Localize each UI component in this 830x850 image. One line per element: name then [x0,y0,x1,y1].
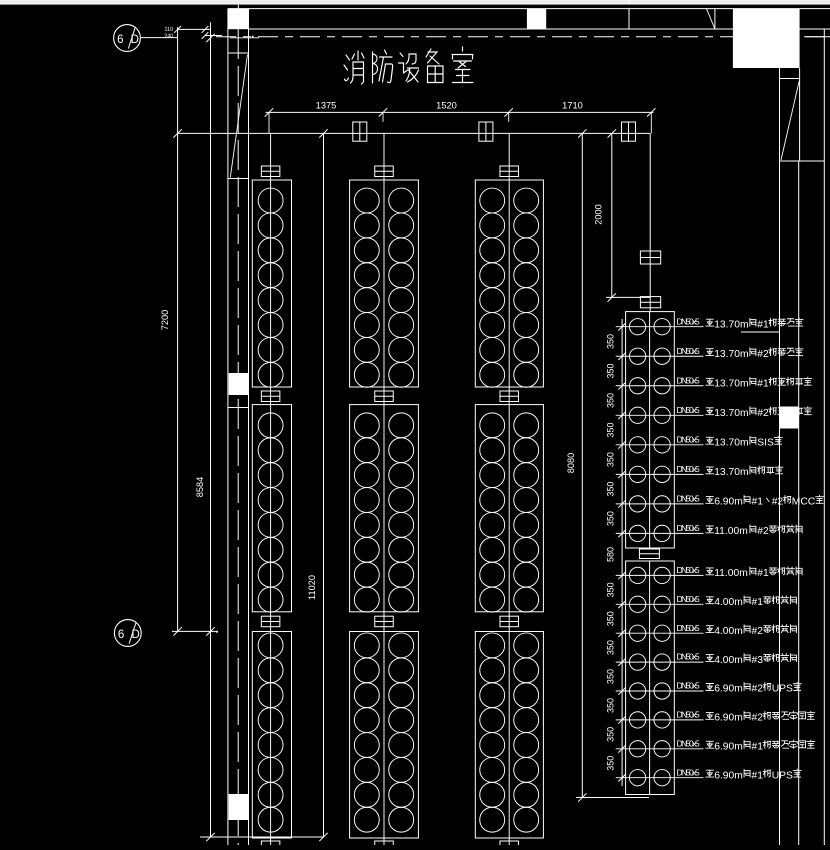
svg-text:DN50x5: DN50x5 [677,767,700,777]
svg-text:350: 350 [606,423,616,438]
svg-text:DN50x5: DN50x5 [677,681,700,691]
svg-text:#1: #1 [757,379,769,390]
svg-text:350: 350 [606,511,616,526]
svg-text:13.70m: 13.70m [714,379,748,390]
svg-text:350: 350 [606,640,616,655]
svg-text:6.90m: 6.90m [714,684,743,695]
svg-text:#1: #1 [752,597,764,608]
svg-text:350: 350 [606,698,616,713]
svg-text:350: 350 [606,452,616,467]
svg-text:8584: 8584 [195,477,205,497]
svg-text:DN50x5: DN50x5 [677,565,700,575]
svg-text:DN50x5: DN50x5 [677,523,700,533]
svg-text:#1: #1 [757,568,769,579]
svg-text:1375: 1375 [316,100,337,110]
svg-text:6: 6 [118,629,124,641]
svg-text:2000: 2000 [594,204,604,224]
svg-text:6.90m: 6.90m [714,742,743,753]
svg-text:#2: #2 [757,349,769,360]
svg-text:SIS: SIS [757,438,774,449]
svg-text:D: D [131,629,139,641]
svg-text:6.90m: 6.90m [714,713,743,724]
svg-text:6.90m: 6.90m [714,497,743,508]
svg-text:#1: #1 [752,497,764,508]
svg-text:11.00m: 11.00m [714,568,748,579]
svg-text:4.00m: 4.00m [714,597,743,608]
svg-text:#2: #2 [752,684,764,695]
svg-text:6.90m: 6.90m [714,770,743,781]
svg-text:350: 350 [606,334,616,349]
svg-text:DN50x5: DN50x5 [677,316,700,326]
svg-text:MCC: MCC [792,497,816,508]
svg-text:4.00m: 4.00m [714,626,743,637]
svg-text:240: 240 [164,34,173,40]
svg-text:13.70m: 13.70m [714,319,748,330]
svg-text:DN50x5: DN50x5 [677,464,700,474]
svg-text:350: 350 [606,727,616,742]
svg-text:#2: #2 [752,626,764,637]
svg-text:350: 350 [606,669,616,684]
svg-text:350: 350 [606,363,616,378]
svg-text:13.70m: 13.70m [714,349,748,360]
svg-text:UPS: UPS [772,684,793,695]
svg-text:350: 350 [606,482,616,497]
svg-text:13.70m: 13.70m [714,408,748,419]
svg-text:#1: #1 [752,742,764,753]
svg-text:DN50x5: DN50x5 [677,652,700,662]
svg-text:8080: 8080 [566,453,576,473]
svg-text:D: D [131,34,139,46]
svg-text:#2: #2 [752,713,764,724]
svg-text:#2: #2 [757,526,769,537]
svg-text:350: 350 [606,393,616,408]
svg-text:110: 110 [165,27,174,33]
svg-text:DN50x5: DN50x5 [677,493,700,503]
svg-text:DN50x5: DN50x5 [677,405,700,415]
svg-text:#1: #1 [752,770,764,781]
svg-text:DN50x5: DN50x5 [677,594,700,604]
svg-text:DN50x5: DN50x5 [677,738,700,748]
svg-text:11.00m: 11.00m [714,526,748,537]
svg-text:DN50x5: DN50x5 [677,375,700,385]
svg-text:4.00m: 4.00m [714,655,743,666]
svg-text:350: 350 [606,582,616,597]
svg-text:#3: #3 [752,655,764,666]
svg-text:#1: #1 [757,319,769,330]
svg-text:350: 350 [606,611,616,626]
svg-text:UPS: UPS [772,770,793,781]
svg-text:#2: #2 [772,497,784,508]
svg-text:7200: 7200 [160,310,170,330]
svg-text:DN50x5: DN50x5 [677,710,700,720]
svg-text:1710: 1710 [562,100,583,110]
svg-text:1520: 1520 [436,100,457,110]
svg-text:#2: #2 [757,408,769,419]
svg-text:11020: 11020 [307,575,317,600]
svg-text:580: 580 [606,547,616,562]
svg-text:DN50x5: DN50x5 [677,623,700,633]
svg-text:13.70m: 13.70m [714,467,748,478]
svg-text:13.70m: 13.70m [714,438,748,449]
svg-text:6: 6 [117,34,123,46]
svg-text:DN50x5: DN50x5 [677,434,700,444]
svg-text:350: 350 [606,756,616,771]
svg-text:DN50x5: DN50x5 [677,346,700,356]
